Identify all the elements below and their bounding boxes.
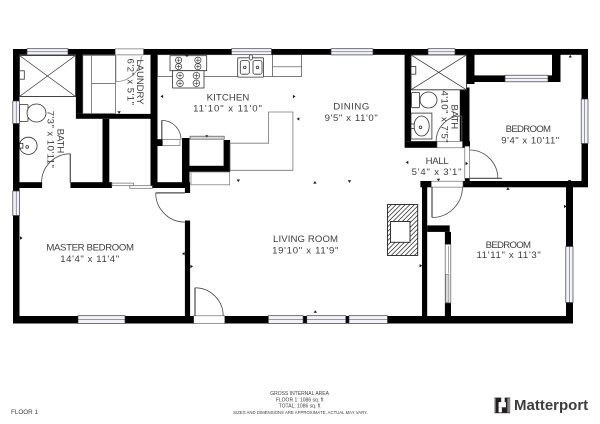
- svg-text:MASTER BEDROOM: MASTER BEDROOM: [46, 242, 134, 253]
- svg-text:9'4" x 10'11": 9'4" x 10'11": [501, 135, 559, 146]
- svg-text:DINING: DINING: [333, 102, 370, 113]
- svg-text:LIVING ROOM: LIVING ROOM: [273, 234, 338, 245]
- svg-text:SIZES AND DIMENSIONS ARE APPRO: SIZES AND DIMENSIONS ARE APPROXIMATE, AC…: [233, 410, 368, 415]
- svg-text:7'3" x 10'11": 7'3" x 10'11": [44, 111, 55, 169]
- svg-text:GROSS INTERNAL AREA: GROSS INTERNAL AREA: [270, 391, 329, 397]
- svg-text:4'10" x 7'5": 4'10" x 7'5": [438, 90, 449, 143]
- svg-text:11'11" x 11'3": 11'11" x 11'3": [477, 250, 542, 261]
- svg-text:BATH: BATH: [55, 129, 66, 154]
- svg-text:FLOOR 1: FLOOR 1: [11, 409, 38, 416]
- svg-text:14'4" x 11'4": 14'4" x 11'4": [60, 254, 119, 265]
- svg-text:9'5" x 11'0": 9'5" x 11'0": [325, 113, 379, 124]
- svg-text:BEDROOM: BEDROOM: [506, 124, 551, 135]
- svg-text:5'4" x 3'1": 5'4" x 3'1": [412, 167, 463, 178]
- svg-text:Matterport: Matterport: [514, 397, 588, 414]
- svg-text:KITCHEN: KITCHEN: [207, 93, 250, 104]
- svg-text:TOTAL: 1086 sq. ft: TOTAL: 1086 sq. ft: [279, 404, 321, 410]
- svg-text:FLOOR 1: 1086 sq. ft: FLOOR 1: 1086 sq. ft: [276, 397, 324, 403]
- svg-text:19'10" x 11'9": 19'10" x 11'9": [272, 245, 339, 256]
- svg-text:11'10" x 11'0": 11'10" x 11'0": [193, 103, 263, 114]
- svg-text:6'2" x 5'1": 6'2" x 5'1": [124, 59, 135, 106]
- svg-text:HALL: HALL: [426, 156, 450, 167]
